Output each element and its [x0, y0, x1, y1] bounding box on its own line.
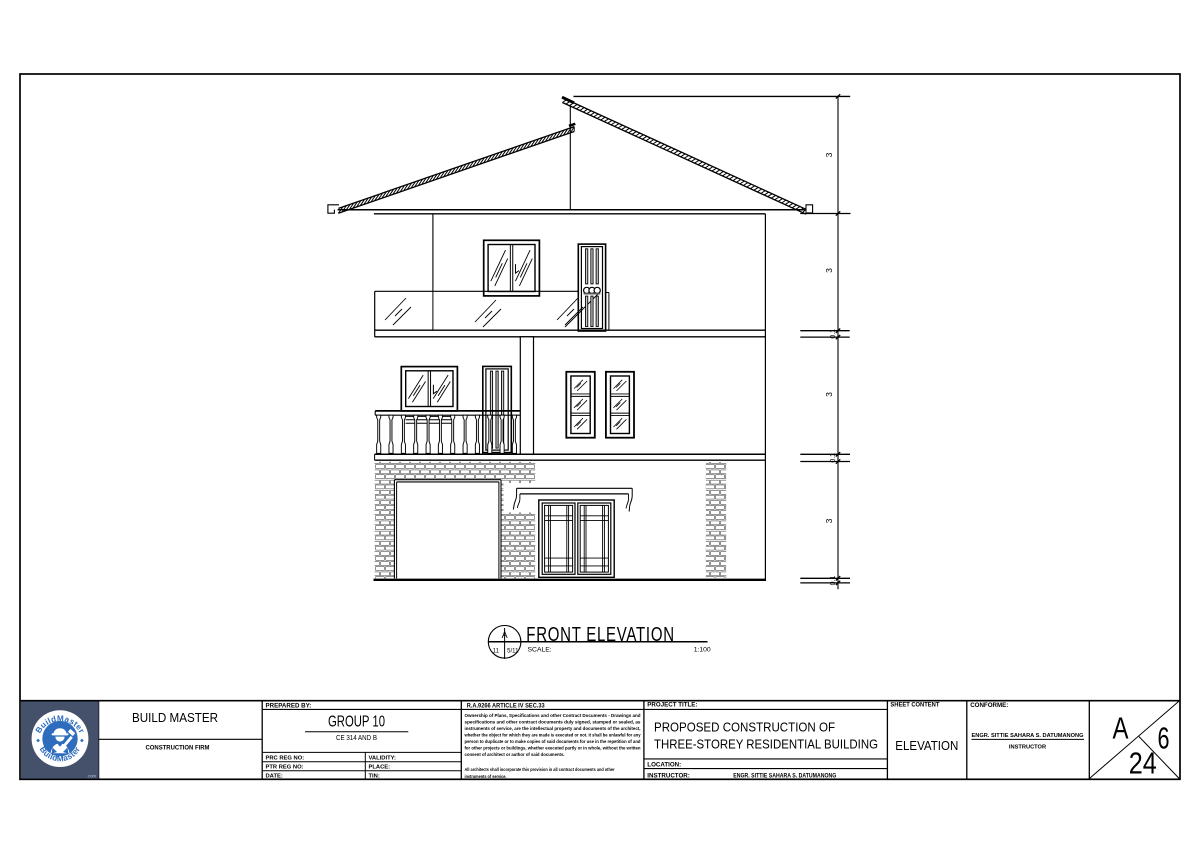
svg-text:5/11: 5/11: [507, 649, 519, 655]
svg-text:3: 3: [824, 268, 834, 273]
svg-text:PLACE:: PLACE:: [369, 765, 391, 771]
svg-text:PTR REG NO:: PTR REG NO:: [266, 765, 304, 771]
svg-text:DATE:: DATE:: [266, 774, 283, 780]
svg-text:CONSTRUCTION FIRM: CONSTRUCTION FIRM: [146, 745, 210, 752]
svg-text:BUILD MASTER: BUILD MASTER: [132, 710, 218, 725]
svg-text:ENGR. SITTIE SAHARA S. DATUMAN: ENGR. SITTIE SAHARA S. DATUMANONG: [972, 733, 1085, 739]
svg-text:instruments of service, are th: instruments of service, are the intellec…: [465, 726, 641, 731]
svg-text:0.1: 0.1: [830, 576, 837, 586]
svg-text:11: 11: [493, 649, 500, 655]
svg-text:3: 3: [824, 392, 834, 397]
svg-text:INSTRUCTOR:: INSTRUCTOR:: [647, 772, 690, 779]
svg-text:specifications and other contr: specifications and other contract docume…: [465, 719, 641, 724]
svg-text:LOCATION:: LOCATION:: [647, 761, 681, 768]
svg-text:0.1: 0.1: [830, 453, 837, 463]
svg-text:SCALE:: SCALE:: [528, 646, 552, 653]
svg-text:A: A: [502, 630, 508, 640]
svg-text:6: 6: [1158, 721, 1170, 756]
svg-text:consent of architect or author: consent of architect or author of said d…: [465, 752, 565, 757]
svg-text:1:100: 1:100: [694, 646, 711, 653]
svg-text:for other projects or building: for other projects or buildings, whether…: [465, 746, 641, 751]
svg-text:PROPOSED CONSTRUCTION OF: PROPOSED CONSTRUCTION OF: [654, 720, 835, 735]
svg-text:.com: .com: [87, 773, 97, 778]
svg-text:CE 314 AND B: CE 314 AND B: [336, 733, 377, 742]
svg-text:GROUP 10: GROUP 10: [328, 713, 385, 730]
svg-text:TIN:: TIN:: [369, 774, 380, 780]
svg-text:person to duplicate or to make: person to duplicate or to make copies of…: [465, 739, 641, 744]
svg-text:instruments of service.: instruments of service.: [465, 774, 507, 779]
svg-text:All architects shall incorpora: All architects shall incorporate this pr…: [465, 767, 615, 772]
svg-text:3: 3: [824, 518, 834, 523]
svg-text:A: A: [1113, 711, 1129, 746]
svg-text:INSTRUCTOR: INSTRUCTOR: [1009, 744, 1046, 750]
svg-text:FRONT ELEVATION: FRONT ELEVATION: [526, 623, 675, 646]
svg-text:PREPARED BY:: PREPARED BY:: [266, 702, 312, 709]
svg-text:Ownership of Plans, Specificat: Ownership of Plans, Specifications and o…: [465, 713, 641, 718]
svg-text:THREE-STOREY RESIDENTIAL BUILD: THREE-STOREY RESIDENTIAL BUILDING: [654, 736, 878, 751]
svg-text:ELEVATION: ELEVATION: [895, 738, 958, 753]
svg-text:0.1: 0.1: [830, 329, 837, 339]
svg-text:ENGR. SITTIE SAHARA S. DATUMAN: ENGR. SITTIE SAHARA S. DATUMANONG: [733, 773, 836, 779]
svg-text:PRC REG NO:: PRC REG NO:: [266, 755, 305, 761]
svg-text:24: 24: [1129, 746, 1157, 781]
svg-text:CONFORME:: CONFORME:: [970, 702, 1008, 709]
svg-text:whether the object for which t: whether the object for which they are ma…: [464, 732, 641, 737]
svg-text:VALIDITY:: VALIDITY:: [369, 755, 397, 761]
svg-text:SHEET CONTENT: SHEET CONTENT: [890, 702, 939, 709]
svg-text:PROJECT TITLE:: PROJECT TITLE:: [647, 702, 697, 709]
svg-text:3: 3: [824, 152, 834, 157]
svg-text:R.A.9266 ARTICLE IV SEC.33: R.A.9266 ARTICLE IV SEC.33: [467, 704, 546, 710]
